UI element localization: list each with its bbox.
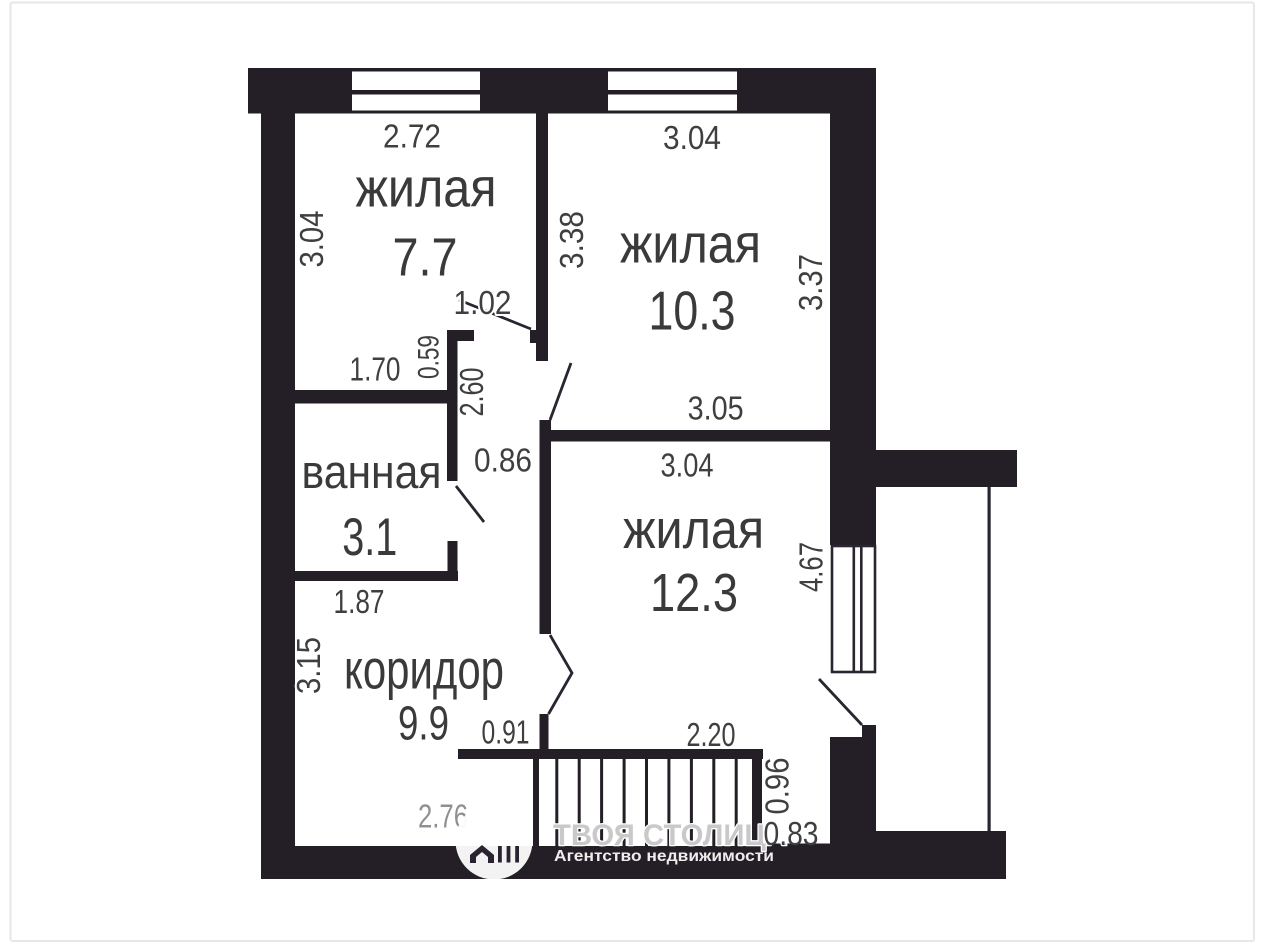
svg-text:2.72: 2.72 bbox=[383, 118, 441, 155]
svg-text:1.70: 1.70 bbox=[350, 351, 401, 388]
svg-text:коридор: коридор bbox=[344, 638, 504, 701]
svg-text:9.9: 9.9 bbox=[398, 697, 449, 750]
svg-text:3.37: 3.37 bbox=[792, 254, 829, 311]
svg-text:жилая: жилая bbox=[620, 212, 761, 274]
svg-text:0.83: 0.83 bbox=[764, 815, 819, 852]
svg-text:7.7: 7.7 bbox=[393, 228, 458, 288]
svg-text:ванная: ванная bbox=[302, 445, 442, 498]
svg-text:жилая: жилая bbox=[623, 498, 764, 560]
svg-text:0.86: 0.86 bbox=[474, 442, 532, 479]
svg-text:0.91: 0.91 bbox=[482, 714, 530, 751]
svg-text:1.87: 1.87 bbox=[334, 583, 385, 620]
svg-text:жилая: жилая bbox=[356, 157, 497, 219]
svg-text:2.20: 2.20 bbox=[687, 716, 736, 753]
svg-text:3.04: 3.04 bbox=[661, 447, 714, 484]
svg-text:2.60: 2.60 bbox=[453, 368, 490, 417]
svg-text:1.02: 1.02 bbox=[454, 284, 512, 321]
svg-text:3.38: 3.38 bbox=[553, 211, 590, 269]
svg-text:3.04: 3.04 bbox=[663, 119, 721, 156]
svg-text:0.59: 0.59 bbox=[413, 335, 446, 379]
svg-text:3.15: 3.15 bbox=[290, 637, 327, 694]
svg-text:3.05: 3.05 bbox=[688, 390, 744, 427]
svg-text:0.96: 0.96 bbox=[759, 758, 796, 815]
svg-text:Агентство недвижимости: Агентство недвижимости bbox=[554, 848, 774, 865]
svg-text:3.1: 3.1 bbox=[342, 508, 397, 567]
svg-text:4.67: 4.67 bbox=[793, 542, 830, 592]
svg-text:10.3: 10.3 bbox=[649, 280, 736, 342]
svg-text:3.04: 3.04 bbox=[293, 211, 330, 268]
svg-text:12.3: 12.3 bbox=[650, 563, 738, 623]
